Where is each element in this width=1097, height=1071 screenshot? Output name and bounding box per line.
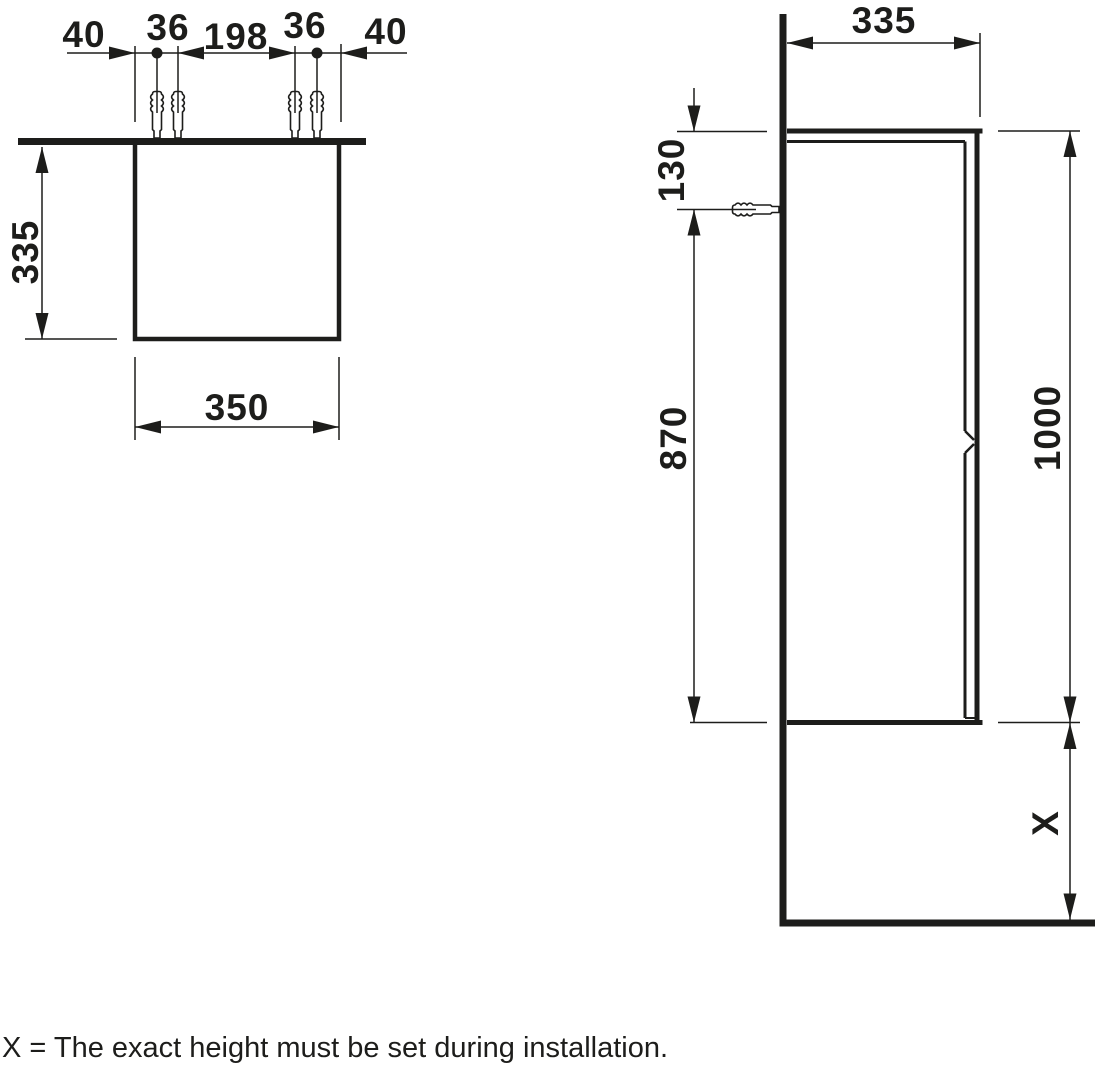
dim-width-top-view: 350 [135, 357, 339, 440]
dim-chain-fixings: 40 36 198 36 40 [62, 5, 407, 122]
arrowhead [1064, 131, 1077, 157]
arrowhead [1064, 894, 1077, 920]
dim-label-depth-side: 335 [852, 0, 917, 41]
drawing-page: 40 36 198 36 40 335 350 [0, 0, 1097, 1071]
arrowhead [269, 47, 295, 60]
caption: X = The exact height must be set during … [2, 1032, 668, 1064]
arrowhead [1064, 723, 1077, 749]
arrowhead [954, 37, 980, 50]
dim-label-plug-spacing: 198 [204, 16, 269, 57]
dim-label-width: 350 [205, 387, 270, 428]
dim-label-depth: 335 [5, 220, 46, 285]
cabinet-outline-top-view [135, 143, 339, 339]
wall-plugs-top-view [151, 92, 324, 139]
top-view: 40 36 198 36 40 335 350 [5, 5, 408, 440]
arrowhead [36, 313, 49, 339]
arrowhead [1064, 697, 1077, 723]
dim-label-edge-offset-right: 40 [364, 11, 407, 52]
dim-label-install-height: X [1025, 810, 1066, 836]
arrowhead [109, 47, 135, 60]
arrowhead [178, 47, 204, 60]
arrowhead [36, 147, 49, 173]
chain-dot [152, 48, 163, 59]
dim-depth-top-view: 335 [5, 147, 117, 339]
arrowhead [688, 697, 701, 723]
arrowhead [313, 421, 339, 434]
dim-depth-side-view: 335 [787, 0, 980, 117]
dim-fixing-heights: 130 870 [651, 88, 767, 723]
dim-install-height: X [1025, 723, 1077, 920]
dim-label-fixing-to-bottom: 870 [653, 406, 694, 471]
dim-label-plug-pair-left: 36 [146, 7, 189, 48]
dim-height: 1000 [998, 131, 1080, 723]
installation-drawing: 40 36 198 36 40 335 350 [0, 0, 1097, 1071]
arrowhead [341, 47, 367, 60]
dim-label-plug-pair-right: 36 [283, 5, 326, 46]
arrowhead [787, 37, 813, 50]
dim-label-height: 1000 [1027, 385, 1068, 471]
dim-label-top-fixing: 130 [651, 138, 692, 203]
chain-dot [312, 48, 323, 59]
side-view: 335 130 870 1000 [651, 0, 1095, 927]
arrowhead [688, 106, 701, 132]
door-handle-notch [965, 431, 974, 453]
dim-label-edge-offset-left: 40 [62, 14, 105, 55]
cabinet-side-profile [787, 129, 983, 724]
arrowhead [135, 421, 161, 434]
